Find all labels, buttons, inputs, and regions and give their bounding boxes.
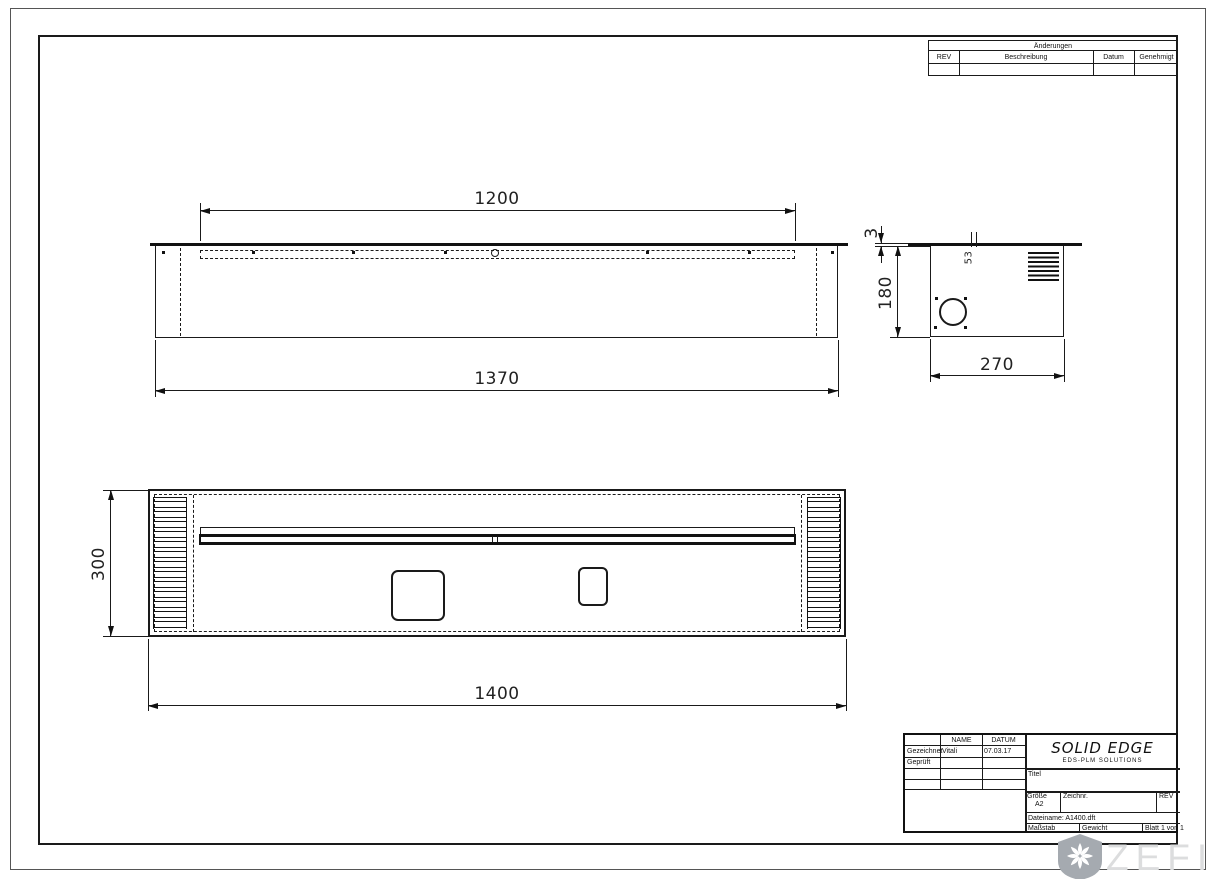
tb-line <box>1079 823 1080 831</box>
drawing-sheet: Änderungen REV Beschreibung Datum Genehm… <box>0 0 1216 879</box>
side-bolt-dot <box>935 297 938 300</box>
front-screw-dot <box>444 251 447 254</box>
revision-divider <box>929 63 1177 64</box>
side-bolt-dot <box>964 326 967 329</box>
tb-line <box>1025 823 1180 824</box>
revision-title: Änderungen <box>929 43 1177 50</box>
side-bolt-dot <box>964 297 967 300</box>
plan-hidden-outline <box>154 494 840 632</box>
front-dim1370-ext-right <box>838 340 839 397</box>
side-dim3-label: 3 <box>862 218 882 248</box>
front-screw-dot <box>748 251 751 254</box>
side-vent-louvers <box>1028 252 1059 282</box>
plan-dim1400-line <box>148 705 846 706</box>
tb-drawing-no-label: Zeichnr. <box>1063 793 1088 800</box>
plan-dim1400-ext-right <box>846 639 847 711</box>
tb-checked-label: Geprüft <box>907 759 930 766</box>
revision-col-genehmigt: Genehmigt <box>1134 54 1179 61</box>
tb-logo-sub: EDS-PLM SOLUTIONS <box>1025 758 1180 764</box>
tb-line <box>1142 823 1143 831</box>
front-dim1200-line <box>200 210 795 211</box>
tb-line <box>1025 812 1180 813</box>
side-dim180-ext-bottom <box>890 337 930 338</box>
front-body <box>155 246 838 338</box>
plan-opening-large <box>391 570 445 621</box>
plan-dim300-line <box>110 490 111 636</box>
revision-divider <box>929 50 1177 51</box>
front-dim1200-label: 1200 <box>467 189 527 209</box>
tb-date-header: DATUM <box>983 737 1024 744</box>
tb-line <box>905 745 1025 746</box>
tb-filename: Dateiname: A1400.dft <box>1028 815 1095 822</box>
side-dim180-label: 180 <box>876 273 896 313</box>
tb-line <box>905 757 1025 758</box>
title-block: NAME DATUM Gezeichnet Vitali 07.03.17 Ge… <box>903 733 1178 833</box>
plan-cut-line-right <box>801 495 802 632</box>
tb-line <box>905 779 1025 780</box>
tb-rev-label: REV <box>1159 793 1173 800</box>
front-dim1200-ext-right <box>795 203 796 241</box>
tb-drawn-name: Vitali <box>942 748 957 755</box>
tb-drawn-label: Gezeichnet <box>907 748 942 755</box>
front-center-mark <box>491 249 499 257</box>
side-dim270-line <box>930 375 1064 376</box>
plan-burner-center-mark <box>492 536 498 542</box>
tb-drawn-date: 07.03.17 <box>984 748 1011 755</box>
plan-vent-right <box>807 497 841 629</box>
side-hole-circle <box>939 298 967 326</box>
side-dim270-ext-right <box>1064 339 1065 382</box>
tb-size-label: Größe <box>1027 793 1047 800</box>
front-dim1370-line <box>155 390 838 391</box>
revision-table: Änderungen REV Beschreibung Datum Genehm… <box>928 40 1178 76</box>
tb-line <box>905 789 1025 790</box>
tb-size-value: A2 <box>1035 801 1044 808</box>
plan-dim1400-ext-left <box>148 639 149 711</box>
inner-frame <box>38 35 1178 845</box>
side-dim180-line <box>897 246 898 337</box>
side-dim270-label: 270 <box>973 355 1021 375</box>
front-screw-dot <box>252 251 255 254</box>
side-dim53-label: 53 <box>964 243 975 273</box>
revision-col-datum: Datum <box>1093 54 1134 61</box>
front-screw-dot <box>162 251 165 254</box>
front-screw-dot <box>646 251 649 254</box>
revision-col-beschreibung: Beschreibung <box>959 54 1093 61</box>
front-dim1370-label: 1370 <box>467 369 527 389</box>
tb-line <box>1060 791 1061 812</box>
tb-logo: SOLID EDGE <box>1025 741 1180 756</box>
plan-cut-line-left <box>193 495 194 632</box>
front-screw-dot <box>352 251 355 254</box>
plan-dim1400-label: 1400 <box>467 684 527 704</box>
side-bolt-dot <box>934 326 937 329</box>
front-screw-dot <box>831 251 834 254</box>
plan-dim300-ext-bottom <box>103 636 148 637</box>
tb-line <box>905 768 1025 769</box>
tb-name-header: NAME <box>941 737 982 744</box>
plan-dim300-label: 300 <box>89 542 109 586</box>
plan-vent-left <box>153 497 187 629</box>
front-hidden-line-right <box>816 248 817 336</box>
revision-col-rev: REV <box>929 54 959 61</box>
front-hidden-line-left <box>180 248 181 336</box>
watermark-text: ZEFIRE <box>1106 837 1216 879</box>
plan-opening-small <box>578 567 608 606</box>
watermark-shield-icon <box>1054 833 1106 879</box>
tb-title-label: Titel <box>1028 771 1041 778</box>
tb-line <box>1025 768 1180 770</box>
tb-line <box>1156 791 1157 812</box>
watermark: ZEFIRE <box>1054 831 1216 879</box>
side-slot-tick <box>976 232 977 247</box>
tb-scale-label: Maßstab <box>1028 825 1055 832</box>
